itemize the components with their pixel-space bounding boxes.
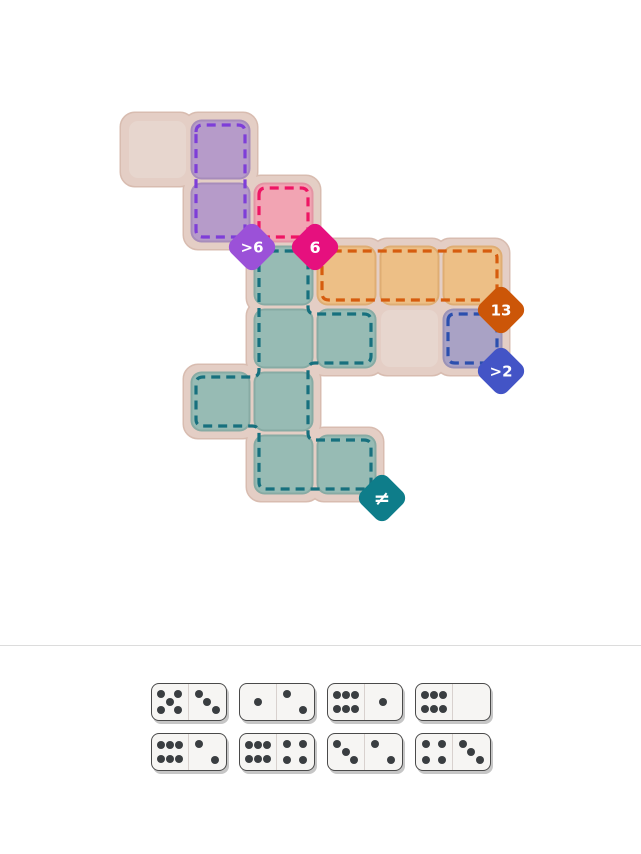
board-cell-empty[interactable]	[381, 310, 438, 367]
pip	[263, 741, 271, 749]
pip	[283, 756, 291, 764]
domino-half-4	[416, 734, 454, 770]
pip	[174, 690, 182, 698]
pip	[254, 741, 262, 749]
pip	[195, 690, 203, 698]
pip	[351, 691, 359, 699]
pip	[166, 755, 174, 763]
pip	[430, 705, 438, 713]
domino-half-6	[240, 734, 278, 770]
domino-tray-row	[151, 733, 491, 771]
domino-half-2	[277, 684, 314, 720]
board-cell[interactable]	[193, 374, 249, 430]
domino-half-2	[365, 734, 402, 770]
domino-5-3[interactable]	[151, 683, 227, 721]
pip	[476, 756, 484, 764]
pip	[299, 706, 307, 714]
pip	[157, 755, 165, 763]
domino-1-2[interactable]	[239, 683, 315, 721]
pip	[387, 756, 395, 764]
pip	[379, 698, 387, 706]
pip	[342, 748, 350, 756]
board-cell[interactable]	[256, 437, 312, 493]
domino-4-3[interactable]	[415, 733, 491, 771]
pip	[211, 756, 219, 764]
pip	[175, 755, 183, 763]
domino-half-3	[328, 734, 366, 770]
domino-half-4	[277, 734, 314, 770]
pip	[166, 741, 174, 749]
pip	[467, 748, 475, 756]
pip	[342, 705, 350, 713]
domino-6-1[interactable]	[327, 683, 403, 721]
pip	[438, 740, 446, 748]
pip	[333, 740, 341, 748]
pip	[459, 740, 467, 748]
pip	[421, 691, 429, 699]
domino-half-1	[240, 684, 278, 720]
constraint-badge-label: 6	[309, 238, 320, 257]
domino-half-0	[453, 684, 490, 720]
tray-divider	[0, 645, 641, 646]
pip	[157, 706, 165, 714]
domino-6-4[interactable]	[239, 733, 315, 771]
board-cell[interactable]	[193, 122, 249, 178]
pip	[430, 691, 438, 699]
pip	[245, 741, 253, 749]
board-cell-empty[interactable]	[129, 121, 186, 178]
pip	[283, 690, 291, 698]
pip	[438, 756, 446, 764]
pip	[439, 705, 447, 713]
domino-6-2[interactable]	[151, 733, 227, 771]
domino-half-5	[152, 684, 190, 720]
pip	[299, 740, 307, 748]
game-stage: >6613>2≠	[0, 0, 641, 854]
pip	[175, 741, 183, 749]
pip	[157, 741, 165, 749]
domino-half-3	[189, 684, 226, 720]
pip	[333, 691, 341, 699]
board-cell[interactable]	[256, 311, 312, 367]
domino-half-1	[365, 684, 402, 720]
pip	[195, 740, 203, 748]
pip	[254, 698, 262, 706]
board-cell[interactable]	[319, 437, 375, 493]
pip	[439, 691, 447, 699]
domino-tray	[0, 683, 641, 771]
domino-half-6	[416, 684, 454, 720]
constraint-badge-label: ≠	[374, 486, 391, 510]
domino-half-3	[453, 734, 490, 770]
domino-half-6	[152, 734, 190, 770]
pip	[422, 756, 430, 764]
pip	[283, 740, 291, 748]
pip	[212, 706, 220, 714]
domino-half-2	[189, 734, 226, 770]
domino-6-0[interactable]	[415, 683, 491, 721]
board-cell[interactable]	[319, 311, 375, 367]
board-cell[interactable]	[382, 248, 438, 304]
pip	[166, 698, 174, 706]
board-cell[interactable]	[256, 374, 312, 430]
pip	[174, 706, 182, 714]
pip	[371, 740, 379, 748]
pip	[263, 755, 271, 763]
pip	[157, 690, 165, 698]
pip	[342, 691, 350, 699]
constraint-badge-label: >2	[489, 362, 512, 380]
pip	[421, 705, 429, 713]
domino-half-6	[328, 684, 366, 720]
pip	[333, 705, 341, 713]
constraint-badge-label: 13	[491, 301, 512, 319]
pip	[350, 756, 358, 764]
pip	[299, 756, 307, 764]
domino-3-2[interactable]	[327, 733, 403, 771]
domino-tray-row	[151, 683, 491, 721]
pip	[254, 755, 262, 763]
pip	[203, 698, 211, 706]
pip	[422, 740, 430, 748]
pip	[351, 705, 359, 713]
pip	[245, 755, 253, 763]
constraint-badge-label: >6	[240, 238, 263, 256]
